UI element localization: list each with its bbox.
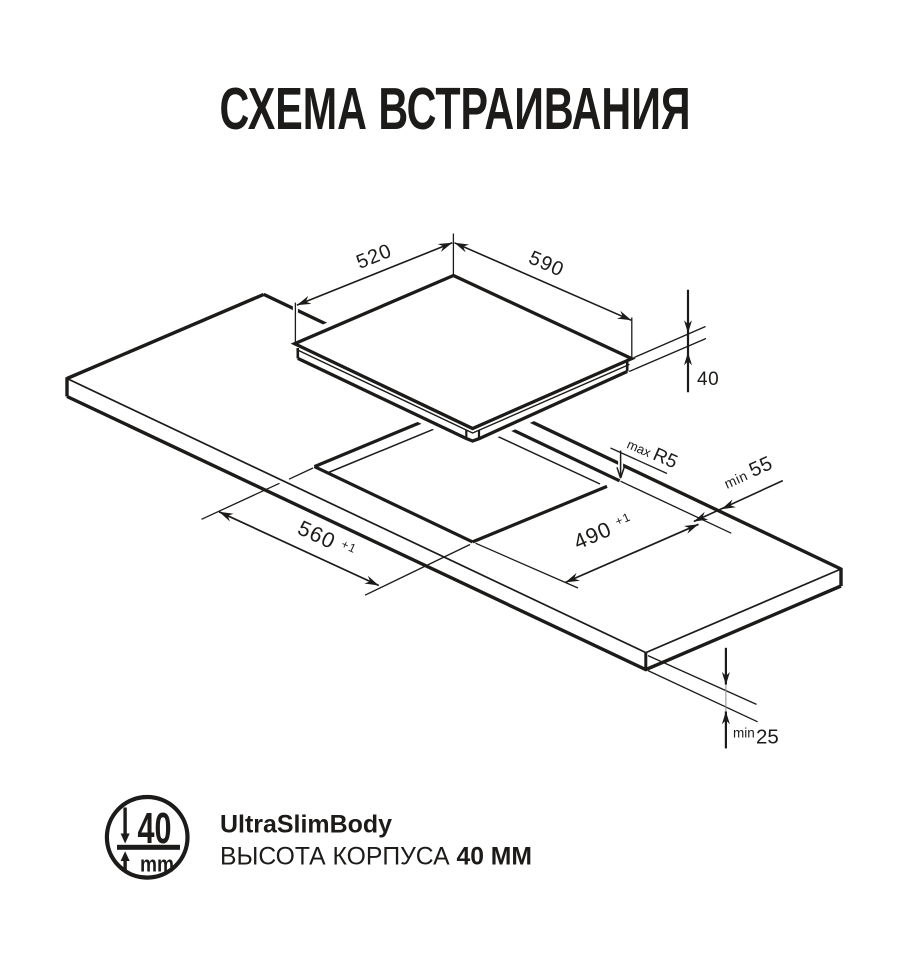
svg-text:UltraSlimBody: UltraSlimBody bbox=[220, 811, 392, 839]
svg-text:ВЫСОТА КОРПУСА 40 ММ: ВЫСОТА КОРПУСА 40 ММ bbox=[220, 843, 532, 871]
svg-text:СХЕМА ВСТРАИВАНИЯ: СХЕМА ВСТРАИВАНИЯ bbox=[220, 76, 691, 142]
svg-text:25: 25 bbox=[756, 726, 779, 749]
svg-text:min: min bbox=[733, 726, 755, 741]
svg-text:40: 40 bbox=[138, 804, 172, 853]
svg-text:40: 40 bbox=[697, 369, 719, 390]
svg-text:mm: mm bbox=[140, 852, 174, 877]
